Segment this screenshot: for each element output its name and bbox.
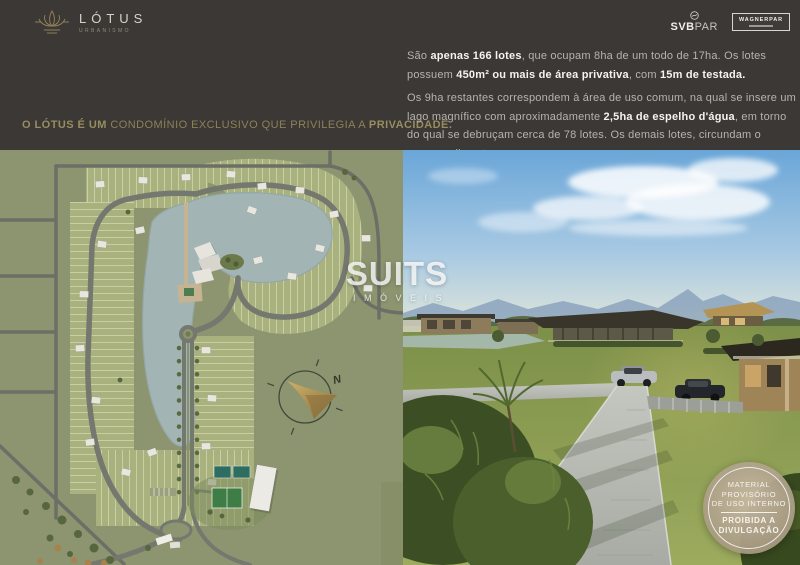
wagner-divider — [749, 25, 773, 27]
svb-light: PAR — [695, 21, 718, 33]
site-plan-map: N — [0, 150, 403, 565]
stamp-line-2: PROVISÓRIO — [722, 490, 777, 500]
partner-logos: SVBPAR WAGNERPAR — [671, 11, 791, 33]
brand-text: LÓTUS URBANISMO — [79, 12, 147, 34]
brand-logo: LÓTUS URBANISMO — [34, 9, 147, 36]
svb-bold: SVB — [671, 21, 695, 33]
intro-paragraph-1: São apenas 166 lotes, que ocupam 8ha de … — [407, 47, 798, 84]
headline: O LÓTUS É UM CONDOMÍNIO EXCLUSIVO QUE PR… — [22, 119, 452, 131]
stamp-divider — [721, 512, 777, 513]
intro-seg-bold: 15m de testada. — [660, 69, 746, 81]
headline-lead: O LÓTUS É UM — [22, 119, 110, 131]
stamp-line-3: DE USO INTERNO — [712, 499, 786, 509]
intro-seg-bold: apenas 166 lotes — [430, 50, 521, 62]
svb-name: SVBPAR — [671, 21, 718, 33]
stamp-badge: MATERIAL PROVISÓRIO DE USO INTERNO PROIB… — [703, 462, 795, 554]
stamp-line-4: PROIBIDA A — [722, 516, 776, 526]
photo-render: MATERIAL PROVISÓRIO DE USO INTERNO PROIB… — [403, 150, 800, 565]
brand-subtitle: URBANISMO — [79, 28, 147, 34]
partner-svbpar: SVBPAR — [671, 11, 718, 33]
wagner-name: WAGNERPAR — [739, 17, 783, 23]
brand-name: LÓTUS — [79, 12, 147, 25]
brochure-page: LÓTUS URBANISMO SVBPAR WAGNERPAR O LÓTUS… — [0, 0, 800, 565]
site-plan-svg: N — [0, 150, 403, 565]
intro-seg-bold: 450m² ou mais de área privativa — [456, 69, 629, 81]
lotus-icon — [34, 9, 70, 36]
stamp-line-1: MATERIAL — [728, 480, 771, 490]
svb-icon — [690, 11, 699, 20]
headline-mid: CONDOMÍNIO EXCLUSIVO QUE PRIVILEGIA A — [110, 119, 369, 131]
intro-seg: São — [407, 50, 430, 62]
intro-seg: , com — [629, 69, 660, 81]
partner-wagnerpar: WAGNERPAR — [732, 13, 790, 31]
stamp-line-5: DIVULGAÇÃO — [719, 526, 780, 536]
intro-copy: São apenas 166 lotes, que ocupam 8ha de … — [407, 47, 798, 163]
intro-seg-bold: 2,5ha de espelho d'água — [604, 111, 735, 123]
